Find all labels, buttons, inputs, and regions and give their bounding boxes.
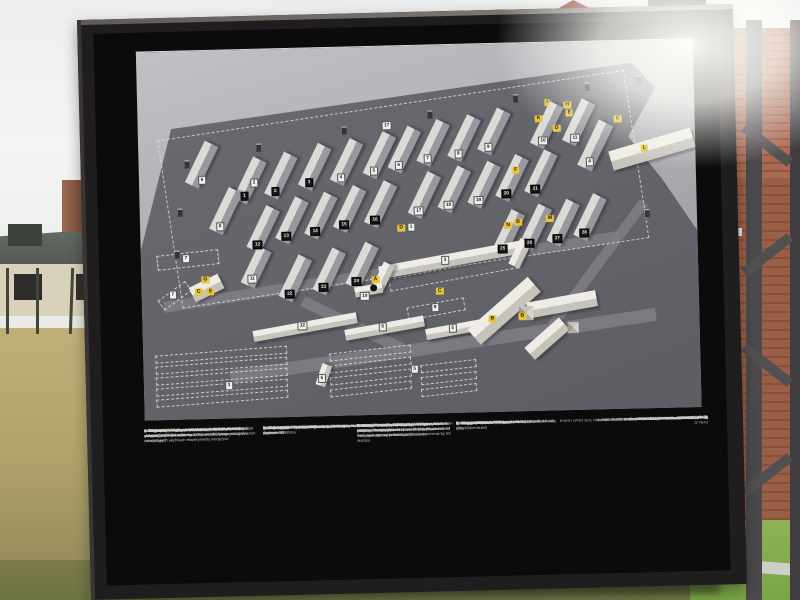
site-letter-marker: A [371, 276, 379, 283]
block-number-label-black: 22 [285, 290, 295, 299]
site-letter-marker: E [566, 109, 574, 116]
guard-tower [427, 111, 432, 118]
guard-tower [637, 76, 642, 83]
legend-entry: ☆ -wystawy [263, 425, 283, 430]
block-number-label-black: 26 [524, 239, 534, 248]
block-number-label-black: 12 [252, 240, 262, 249]
site-letter-marker: N [504, 222, 512, 229]
guard-tower [256, 145, 261, 152]
legend-column-polish-1: A -Brama obozowa z napisem "Arbeit macht… [144, 426, 256, 429]
block-number-label-black: 1 [240, 192, 248, 201]
site-letter-marker: C [436, 288, 444, 295]
site-letter-marker: C [614, 115, 622, 122]
block-number-label-black: 25 [498, 244, 508, 253]
block-number-label-white: 18 [443, 201, 453, 210]
site-letter-marker: C [195, 289, 203, 296]
site-letter-marker: H [563, 101, 571, 108]
block-number-label-black: 23 [318, 283, 328, 292]
site-letter-marker: E [207, 288, 215, 295]
truss-beam [790, 20, 800, 600]
block-number-label-white: 4 [337, 173, 345, 182]
block-number-label-white: 11 [570, 134, 580, 143]
block-number-label-white: 3 [441, 256, 449, 265]
guard-tower [513, 95, 518, 102]
block-number-label-black: 3 [305, 178, 313, 187]
block-number-label-black: 14 [310, 227, 320, 236]
block-number-label-white: 1 [407, 223, 415, 232]
legend-entry: ☆ -Exhibitions [456, 420, 480, 426]
block-number-label-white: 12 [297, 321, 307, 330]
legend-column-english-1: A -Main camp gate bearing the legend Arb… [357, 421, 453, 423]
unpreserved-building-outline [421, 383, 478, 397]
guard-tower [178, 210, 183, 217]
block-number-label-white: 7 [169, 290, 177, 299]
site-letter-marker: B [488, 315, 496, 322]
block-number-label-black: 20 [501, 189, 511, 198]
block-number-label-white: 17 [414, 206, 424, 215]
legend-column-hebrew: א -שער המחנה עם הכתובת "העבודה משחררת"ב … [553, 415, 708, 419]
block-number-label-white: 5 [370, 167, 378, 176]
guard-tower [585, 84, 590, 91]
block-number-label-white: 5 [318, 374, 326, 383]
block-number-label-white: 5 [379, 322, 387, 331]
site-letter-marker: F [512, 167, 519, 174]
block-number-label-white: 8 [216, 222, 224, 231]
fence-post [36, 268, 39, 334]
site-letter-marker: K [535, 115, 543, 122]
block-number-label-white: 7 [424, 154, 432, 163]
block-number-label-black: 16 [370, 215, 380, 224]
fence-post [6, 268, 9, 334]
block-number-label-white: 8 [455, 149, 463, 158]
site-letter-marker: L [641, 145, 648, 152]
map-layer: 6122345678910111781213141516171819202142… [136, 39, 702, 420]
block-number-label-black: 21 [530, 185, 540, 194]
site-letter-marker: D [553, 125, 561, 132]
sign-truss-frame [738, 20, 800, 600]
sign-inner-surface: 6122345678910111781213141516171819202142… [93, 18, 730, 585]
block-number-label-white: 9 [431, 303, 439, 312]
block-number-label-white: 6 [198, 176, 206, 185]
block-number-label-white: 6 [395, 161, 403, 170]
block-number-label-white: 2 [250, 178, 258, 187]
block-number-label-white: 9 [484, 143, 492, 152]
block-number-label-white: 5 [411, 365, 419, 374]
block-number-label-white: 17 [382, 121, 392, 130]
block-number-label-black: 28 [579, 228, 589, 237]
site-letter-marker: B [518, 313, 526, 320]
block-number-label-white: 3 [225, 381, 233, 390]
block-number-label-white: 5 [449, 324, 457, 333]
guard-tower [184, 161, 189, 168]
legend-entry: ☆ -תערוכות [688, 415, 708, 420]
block-number-label-white: 11 [247, 274, 257, 283]
block-number-label-black: 27 [552, 234, 562, 243]
legend-column-english-2: N -Storage for camp clothing and uniform… [456, 418, 558, 420]
block-number-label-white: 10 [538, 136, 548, 145]
legend-panel: A -Brama obozowa z napisem "Arbeit macht… [117, 415, 717, 582]
photo-scene: 6122345678910111781213141516171819202142… [0, 0, 800, 600]
camp-road [229, 307, 656, 383]
block-number-label-white: 10 [360, 292, 370, 301]
block-number-label-white: 7 [182, 254, 190, 263]
site-letter-marker: M [546, 215, 555, 222]
block-number-label-black: 13 [281, 232, 291, 241]
roof-vent [8, 224, 42, 246]
block-number-label-black: 15 [339, 220, 349, 229]
site-letter-marker: D [397, 225, 405, 232]
map-sign-board: 6122345678910111781213141516171819202142… [77, 4, 747, 600]
camp-map: 6122345678910111781213141516171819202142… [136, 38, 702, 420]
site-letter-marker: G [201, 276, 209, 283]
guard-tower [645, 210, 650, 217]
block-number-label-black: 24 [351, 277, 361, 286]
guard-tower [342, 128, 347, 135]
truss-beam [746, 20, 762, 600]
block-number-label-white: 19 [473, 196, 483, 205]
site-letter-marker: I [544, 99, 550, 106]
pyramid-roof-tower [567, 321, 578, 332]
guard-tower [175, 252, 180, 259]
block-number-label-black: 2 [271, 187, 279, 196]
block-number-label-white: 4 [586, 157, 594, 166]
site-letter-marker: B [514, 219, 522, 226]
